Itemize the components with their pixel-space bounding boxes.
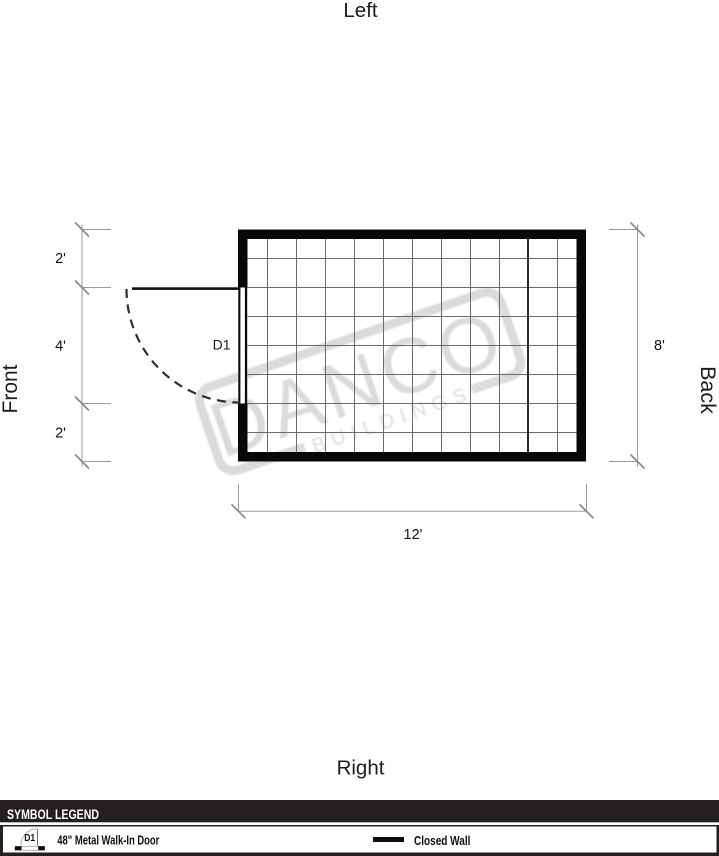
svg-text:Left: Left — [343, 0, 377, 22]
svg-text:8': 8' — [654, 338, 665, 354]
svg-text:Right: Right — [337, 757, 385, 780]
svg-text:Back: Back — [696, 366, 719, 414]
svg-text:4': 4' — [55, 338, 66, 354]
svg-text:SYMBOL LEGEND: SYMBOL LEGEND — [7, 807, 99, 822]
svg-text:Closed Wall: Closed Wall — [414, 833, 470, 848]
svg-text:12': 12' — [404, 527, 423, 543]
svg-text:2': 2' — [55, 251, 66, 267]
svg-text:2': 2' — [55, 426, 66, 442]
svg-text:Front: Front — [0, 364, 22, 413]
svg-text:D1: D1 — [213, 337, 231, 353]
svg-text:D1: D1 — [24, 832, 35, 844]
svg-text:48" Metal Walk-In Door: 48" Metal Walk-In Door — [57, 833, 159, 848]
